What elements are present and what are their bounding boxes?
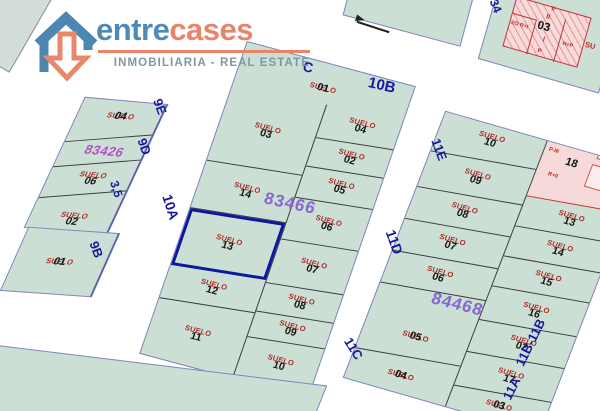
building-18-number: 18 (563, 157, 579, 171)
street-label-10a: 10A (160, 193, 181, 222)
cadastral-map: SUELO04 83426 SUELO06 SUELO02 SUELO01 SU… (0, 0, 600, 411)
block-parcel-01: SUELO01 (0, 227, 120, 298)
entrecases-logo: entrecases INMOBILIARIA - REAL ESTATE (34, 4, 324, 82)
brand-underline (98, 50, 310, 53)
building-03-number: 03 (536, 20, 551, 35)
brand-name: entrecases (96, 14, 253, 45)
house-arrows-icon (34, 10, 98, 82)
block-83426: SUELO04 83426 SUELO06 SUELO02 (24, 97, 169, 235)
street-label-9e: 9E (151, 97, 169, 116)
brand-tagline: INMOBILIARIA - REAL ESTATE (98, 57, 310, 69)
cut-suelo-label: SU (584, 41, 596, 51)
block-number-83426: 83426 (82, 143, 126, 159)
